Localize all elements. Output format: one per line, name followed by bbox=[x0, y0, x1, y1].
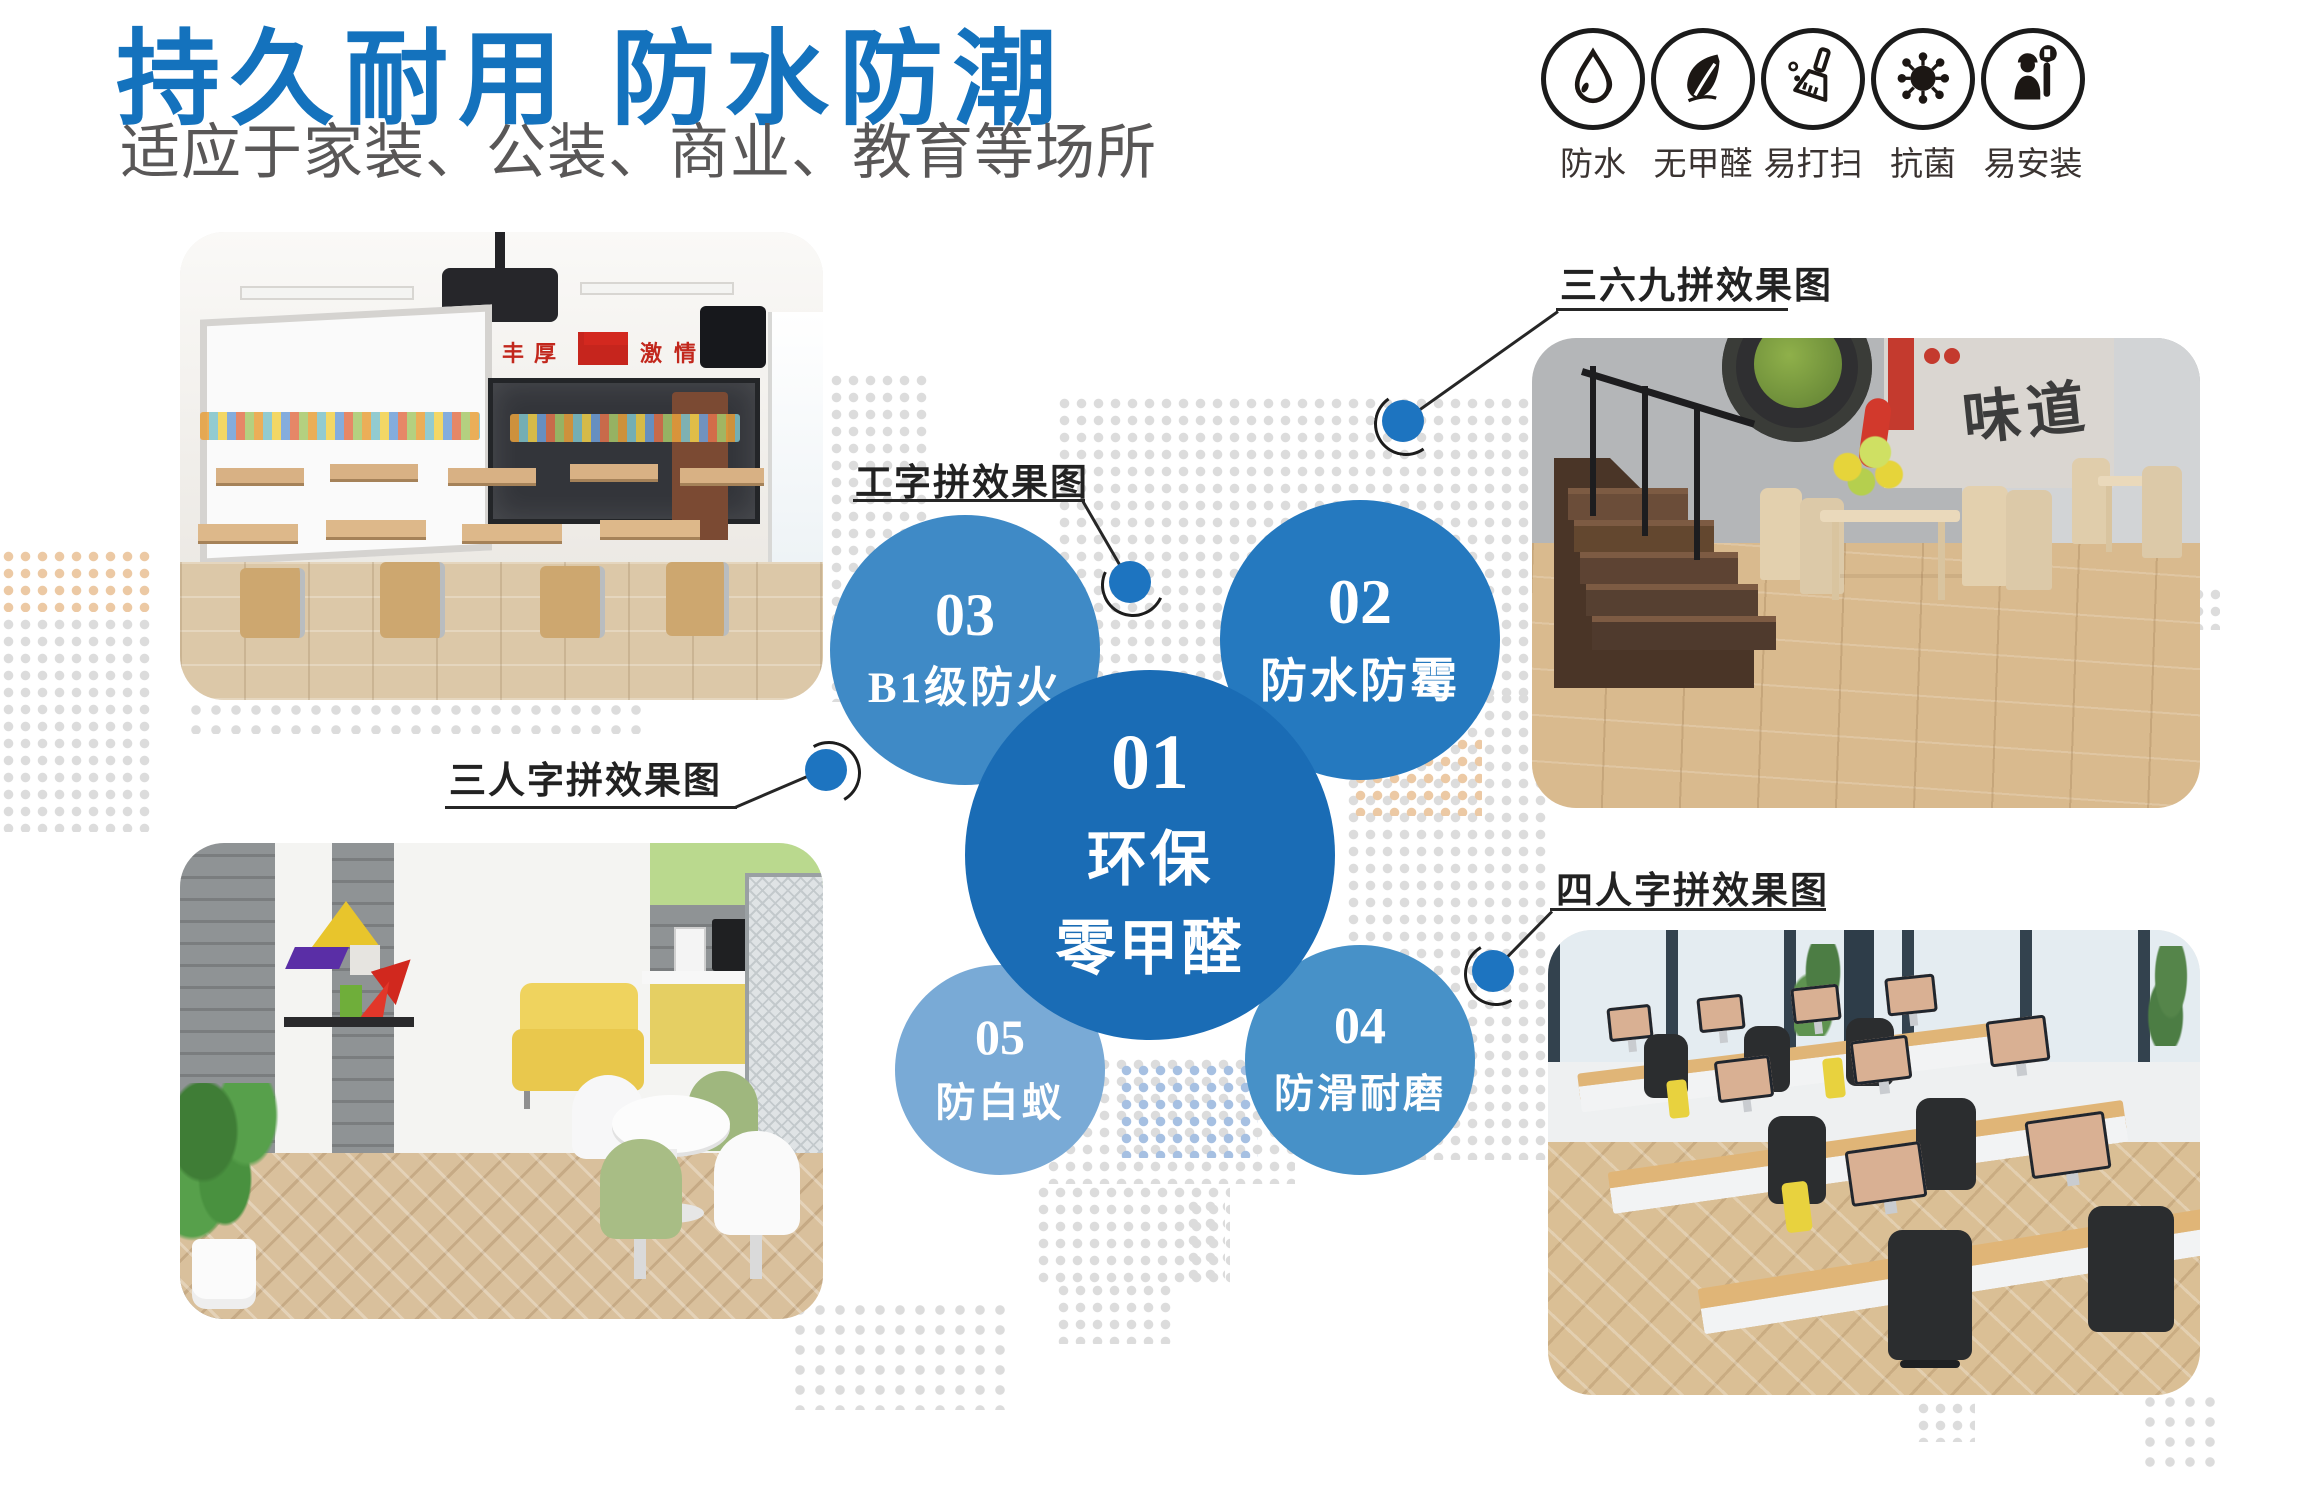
bubble-number: 02 bbox=[1328, 570, 1392, 634]
dining-chair bbox=[2072, 458, 2110, 544]
poster-text: 味道 bbox=[1958, 360, 2094, 457]
office-chair bbox=[1888, 1230, 1972, 1360]
badge-ring bbox=[1651, 28, 1755, 130]
badge-easy-install: 易安装 bbox=[1983, 28, 2083, 185]
poster-ribbon bbox=[1888, 338, 1914, 430]
badge-antibacterial: 抗菌 bbox=[1873, 28, 1973, 185]
tangram-piece bbox=[285, 947, 349, 969]
table-leg bbox=[1832, 522, 1839, 600]
imac-monitor bbox=[1985, 1015, 2050, 1068]
badge-ring bbox=[1761, 28, 1865, 130]
installer-icon bbox=[2000, 44, 2066, 115]
poster-seal bbox=[1924, 348, 1940, 364]
badge-ring bbox=[1541, 28, 1645, 130]
dot-map-patch bbox=[1055, 1282, 1175, 1344]
callout-4-herringbone-label: 四人字拼效果图 bbox=[1556, 860, 1829, 914]
stair-railing bbox=[1590, 366, 1596, 516]
art-shelf bbox=[284, 1017, 414, 1027]
promo-page: 持久耐用 防水防潮 适应于家装、公装、商业、教育等场所 防水 bbox=[0, 0, 2304, 1485]
badge-ring bbox=[1871, 28, 1975, 130]
yellow-bottle bbox=[1822, 1057, 1846, 1099]
desk bbox=[448, 468, 536, 486]
imac-monitor bbox=[1884, 973, 1938, 1016]
badge-label: 易安装 bbox=[1984, 137, 2083, 185]
callout-dot bbox=[805, 749, 847, 791]
stair-step bbox=[1586, 584, 1758, 616]
classroom-light bbox=[240, 286, 414, 300]
lounge-photo bbox=[180, 843, 823, 1319]
dining-chair bbox=[2006, 490, 2052, 590]
stair-step bbox=[1568, 488, 1688, 520]
dining-table bbox=[1820, 510, 1960, 522]
callout-dot bbox=[1472, 950, 1514, 992]
desk bbox=[600, 520, 700, 540]
office-chair bbox=[1916, 1098, 1976, 1190]
chair-pedestal bbox=[634, 1239, 646, 1279]
germ-icon bbox=[1890, 44, 1956, 115]
imac-monitor bbox=[1844, 1141, 1927, 1207]
dot-map-patch bbox=[1185, 1198, 1225, 1284]
desk bbox=[198, 524, 298, 544]
broom-icon bbox=[1780, 44, 1846, 115]
tangram-piece bbox=[312, 901, 380, 947]
office-chair bbox=[2088, 1206, 2174, 1332]
waterdrop-icon bbox=[1560, 44, 1626, 115]
chair bbox=[380, 562, 445, 638]
desk bbox=[326, 520, 426, 540]
table-leg bbox=[1938, 522, 1945, 600]
stair-railing bbox=[1694, 408, 1700, 560]
classroom-banner-text: 丰厚 bbox=[502, 336, 566, 368]
coffee-machine-white bbox=[674, 927, 706, 975]
callout-dot bbox=[1109, 561, 1151, 603]
color-bookshelf bbox=[200, 412, 480, 440]
callout-underline bbox=[1556, 308, 1788, 311]
imac-monitor bbox=[1606, 1004, 1653, 1042]
imac-monitor bbox=[1790, 984, 1842, 1025]
callout-369-pattern-label: 三六九拼效果图 bbox=[1560, 255, 1833, 309]
feature-bubble-01: 01 环保 零甲醛 bbox=[965, 670, 1335, 1040]
dot-map-patch bbox=[790, 1300, 1015, 1410]
tub-chair-green bbox=[600, 1139, 682, 1239]
classroom-window bbox=[768, 312, 823, 562]
badge-label: 抗菌 bbox=[1890, 137, 1956, 185]
badge-waterproof: 防水 bbox=[1543, 28, 1643, 185]
classroom-photo: 丰厚 激情灵动 bbox=[180, 232, 823, 700]
bubble-number: 04 bbox=[1334, 1001, 1386, 1053]
tangram-art bbox=[284, 901, 414, 1021]
dot-map-patch bbox=[0, 616, 150, 832]
dining-chair bbox=[1962, 486, 2008, 586]
chair bbox=[240, 568, 305, 638]
dining-chair bbox=[1760, 488, 1802, 580]
restaurant-photo: 味道 bbox=[1532, 338, 2200, 808]
callout-underline bbox=[1550, 908, 1826, 911]
tangram-piece bbox=[340, 985, 362, 1017]
imac-monitor bbox=[1850, 1035, 1913, 1086]
dot-map-patch bbox=[2140, 1392, 2225, 1467]
bubble-label: B1级防火 bbox=[868, 653, 1062, 715]
feature-badges: 防水 无甲醛 bbox=[1543, 28, 2083, 185]
coffee-machine-black bbox=[712, 919, 748, 971]
poster-seal bbox=[1944, 348, 1960, 364]
dot-map-patch bbox=[0, 548, 150, 612]
imac-monitor bbox=[1714, 1055, 1775, 1104]
tub-chair-white bbox=[714, 1131, 800, 1235]
chair-pedestal bbox=[750, 1235, 762, 1279]
stair-step bbox=[1592, 616, 1776, 650]
tangram-piece bbox=[361, 977, 390, 1020]
badge-no-formaldehyde: 无甲醛 bbox=[1653, 28, 1753, 185]
leaf-icon bbox=[1670, 44, 1736, 115]
stair-railing bbox=[1642, 386, 1648, 536]
imac-monitor bbox=[2024, 1111, 2111, 1180]
bubble-label: 零甲醛 bbox=[1056, 900, 1245, 987]
bubble-label: 防水防霉 bbox=[1260, 642, 1460, 711]
office-plant bbox=[2144, 946, 2198, 1046]
desk bbox=[216, 468, 304, 486]
callout-dot bbox=[1382, 400, 1424, 442]
desk bbox=[462, 524, 562, 544]
sofa-leg bbox=[524, 1091, 530, 1109]
chair bbox=[540, 566, 605, 638]
office-photo bbox=[1548, 930, 2200, 1395]
color-bookshelf bbox=[510, 414, 740, 442]
table-leg bbox=[2106, 486, 2112, 552]
imac-monitor bbox=[1696, 994, 1745, 1034]
speaker-box bbox=[700, 306, 766, 368]
badge-ring bbox=[1981, 28, 2085, 130]
stair-step bbox=[1580, 552, 1738, 584]
plant-leaves bbox=[180, 1083, 280, 1243]
bubble-label: 防白蚁 bbox=[936, 1070, 1065, 1128]
classroom-light bbox=[580, 282, 734, 295]
flower-bouquet bbox=[1820, 430, 1912, 504]
callout-i-pattern-label: 工字拼效果图 bbox=[855, 452, 1089, 506]
dot-map-patch bbox=[186, 700, 646, 734]
dot-map-patch bbox=[1118, 1062, 1258, 1158]
bubble-number: 03 bbox=[935, 585, 995, 645]
callout-underline bbox=[445, 806, 737, 809]
bubble-number: 05 bbox=[975, 1012, 1025, 1062]
plant-pot bbox=[192, 1239, 256, 1309]
yellow-bottle bbox=[1666, 1079, 1690, 1119]
page-subtitle: 适应于家装、公装、商业、教育等场所 bbox=[120, 104, 1157, 191]
desk bbox=[330, 464, 418, 482]
callout-underline bbox=[853, 499, 1085, 502]
badge-label: 易打扫 bbox=[1764, 137, 1863, 185]
badge-label: 防水 bbox=[1560, 137, 1626, 185]
chair bbox=[666, 562, 729, 636]
dot-map-patch bbox=[1915, 1400, 1975, 1442]
desk bbox=[570, 464, 658, 482]
projector-stem bbox=[495, 232, 505, 272]
bubble-label: 防滑耐磨 bbox=[1274, 1061, 1446, 1119]
badge-label: 无甲醛 bbox=[1654, 137, 1753, 185]
dining-chair bbox=[2142, 466, 2182, 558]
china-flag bbox=[578, 332, 628, 365]
chair-base bbox=[1900, 1360, 1960, 1368]
callout-3-herringbone-label: 三人字拼效果图 bbox=[449, 750, 722, 804]
bubble-label: 环保 bbox=[1087, 811, 1213, 898]
bubble-number: 01 bbox=[1111, 723, 1189, 801]
badge-easy-clean: 易打扫 bbox=[1763, 28, 1863, 185]
desk bbox=[680, 468, 764, 486]
